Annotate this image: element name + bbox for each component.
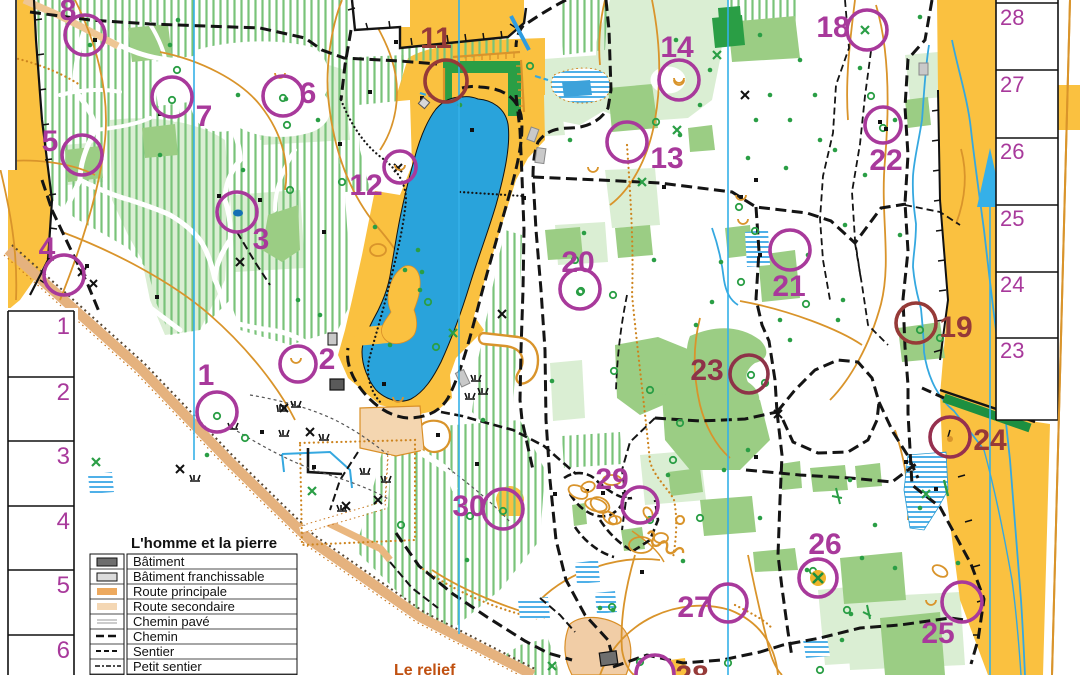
svg-text:30: 30 bbox=[452, 490, 485, 523]
svg-text:Route principale: Route principale bbox=[133, 584, 227, 599]
svg-text:18: 18 bbox=[816, 11, 849, 44]
svg-text:19: 19 bbox=[939, 311, 972, 344]
svg-text:4: 4 bbox=[39, 232, 56, 265]
svg-text:24: 24 bbox=[973, 424, 1007, 457]
svg-text:Le relief: Le relief bbox=[394, 662, 456, 675]
svg-text:25: 25 bbox=[1000, 206, 1024, 231]
svg-text:27: 27 bbox=[1000, 72, 1024, 97]
svg-text:8: 8 bbox=[60, 0, 77, 27]
svg-text:26: 26 bbox=[808, 528, 841, 561]
svg-text:Bâtiment: Bâtiment bbox=[133, 554, 185, 569]
svg-text:28: 28 bbox=[675, 660, 708, 675]
svg-text:1: 1 bbox=[198, 359, 215, 392]
svg-text:6: 6 bbox=[57, 637, 70, 664]
svg-text:Bâtiment franchissable: Bâtiment franchissable bbox=[133, 569, 265, 584]
svg-text:L'homme et la pierre: L'homme et la pierre bbox=[131, 535, 277, 552]
svg-text:3: 3 bbox=[57, 443, 70, 470]
svg-text:23: 23 bbox=[1000, 338, 1024, 363]
svg-text:11: 11 bbox=[420, 22, 452, 55]
svg-text:7: 7 bbox=[196, 100, 213, 133]
svg-text:Chemin: Chemin bbox=[133, 629, 178, 644]
svg-text:23: 23 bbox=[690, 354, 723, 387]
svg-text:Chemin pavé: Chemin pavé bbox=[133, 614, 210, 629]
svg-text:20: 20 bbox=[561, 246, 594, 279]
svg-text:4: 4 bbox=[57, 508, 70, 535]
svg-text:27: 27 bbox=[677, 591, 710, 624]
svg-text:24: 24 bbox=[1000, 272, 1024, 297]
svg-text:Route secondaire: Route secondaire bbox=[133, 599, 235, 614]
svg-text:29: 29 bbox=[595, 463, 628, 496]
svg-text:1: 1 bbox=[57, 313, 70, 340]
svg-text:5: 5 bbox=[42, 125, 59, 158]
svg-text:2: 2 bbox=[57, 379, 70, 406]
svg-text:6: 6 bbox=[300, 77, 317, 110]
svg-text:26: 26 bbox=[1000, 139, 1024, 164]
svg-text:13: 13 bbox=[650, 142, 683, 175]
svg-text:12: 12 bbox=[349, 169, 382, 202]
svg-text:2: 2 bbox=[319, 343, 336, 376]
svg-text:25: 25 bbox=[921, 617, 954, 650]
svg-text:Petit sentier: Petit sentier bbox=[133, 659, 202, 674]
svg-text:28: 28 bbox=[1000, 5, 1024, 30]
svg-text:21: 21 bbox=[772, 270, 805, 303]
svg-text:Sentier: Sentier bbox=[133, 644, 175, 659]
svg-text:5: 5 bbox=[57, 572, 70, 599]
svg-text:14: 14 bbox=[660, 31, 694, 64]
svg-text:22: 22 bbox=[869, 144, 902, 177]
svg-text:3: 3 bbox=[253, 223, 270, 256]
